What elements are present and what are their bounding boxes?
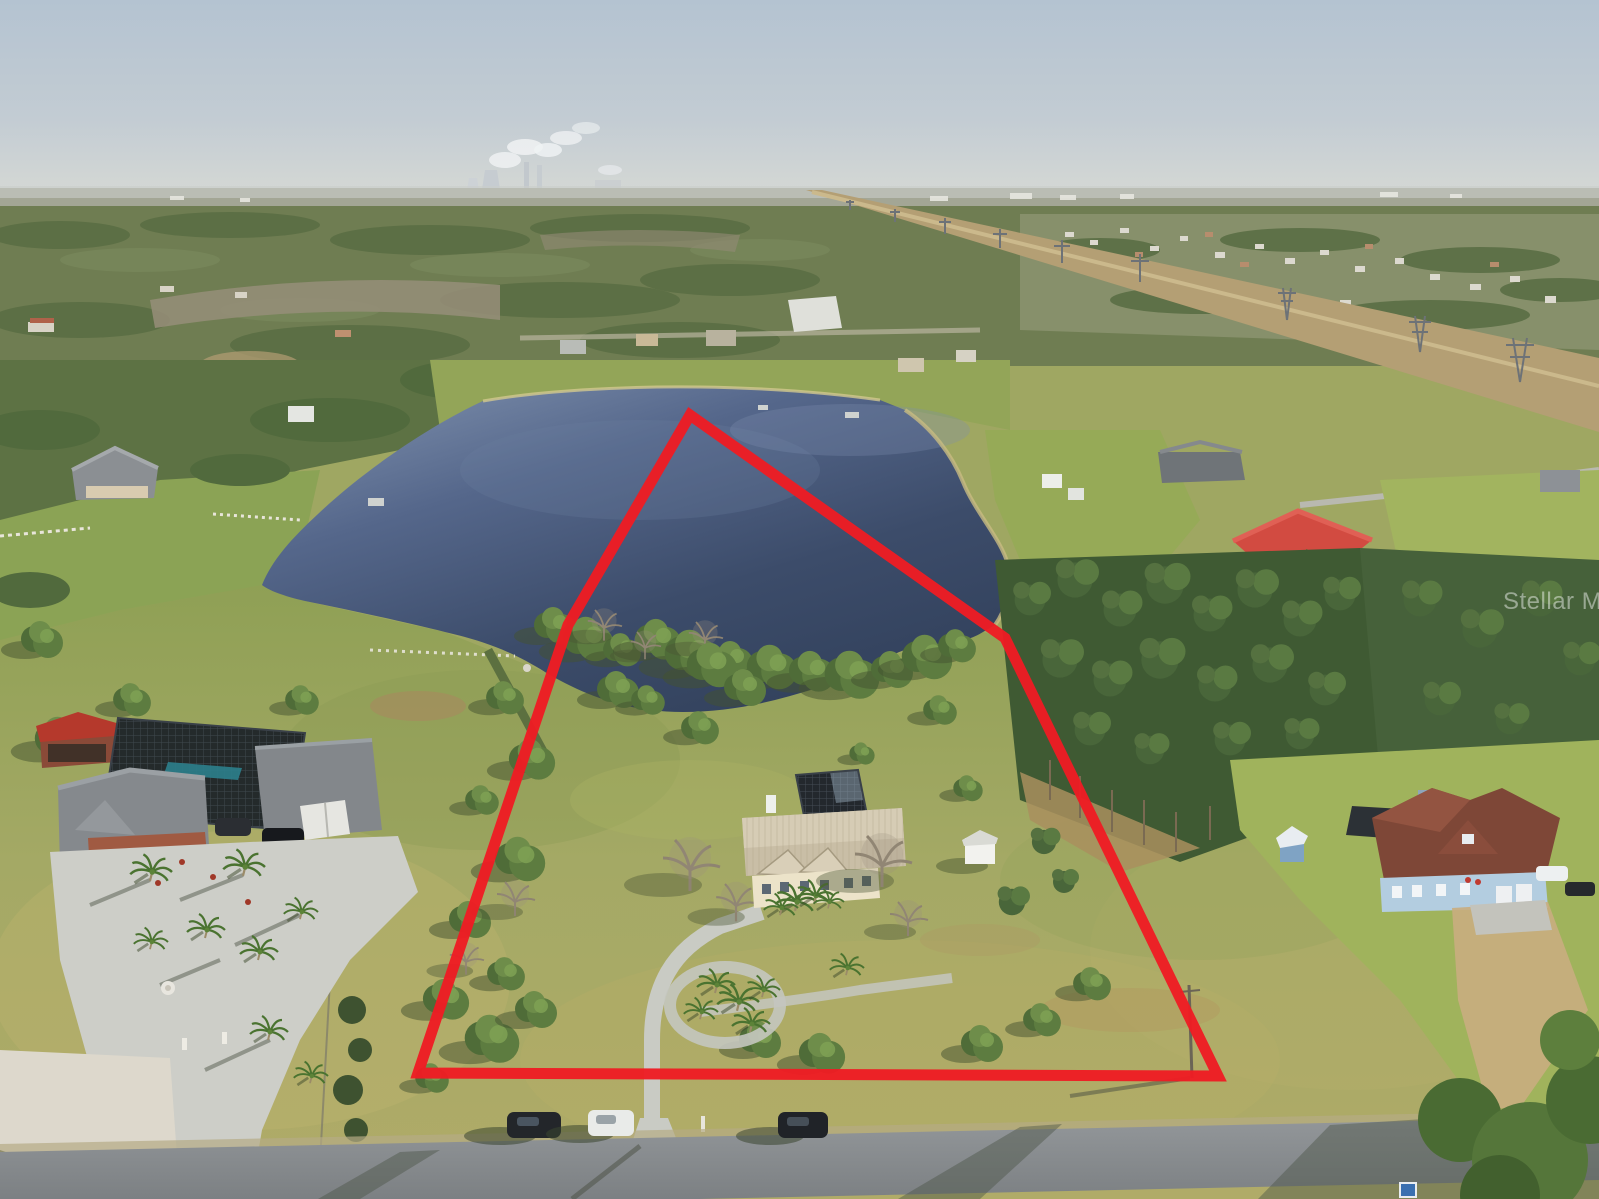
white-roof-outbuilding [288,406,314,422]
white-shed [1042,474,1062,488]
sky [0,0,1599,200]
aerial-photo-canvas: Stellar MLS [0,0,1599,1199]
gray-roof-house [1158,442,1245,483]
white-pickup [1536,866,1568,881]
left-neighbor-garage [255,740,382,840]
aerial-photo: Stellar MLS [0,0,1599,1199]
street-sign [1400,1183,1416,1197]
chimney [766,795,776,813]
stellar-mls-watermark: Stellar MLS [1503,588,1599,615]
right-neighbor-house [1372,788,1560,912]
dark-car [1565,882,1595,896]
white-shed-2 [1068,488,1084,500]
parked-suv [215,818,251,836]
